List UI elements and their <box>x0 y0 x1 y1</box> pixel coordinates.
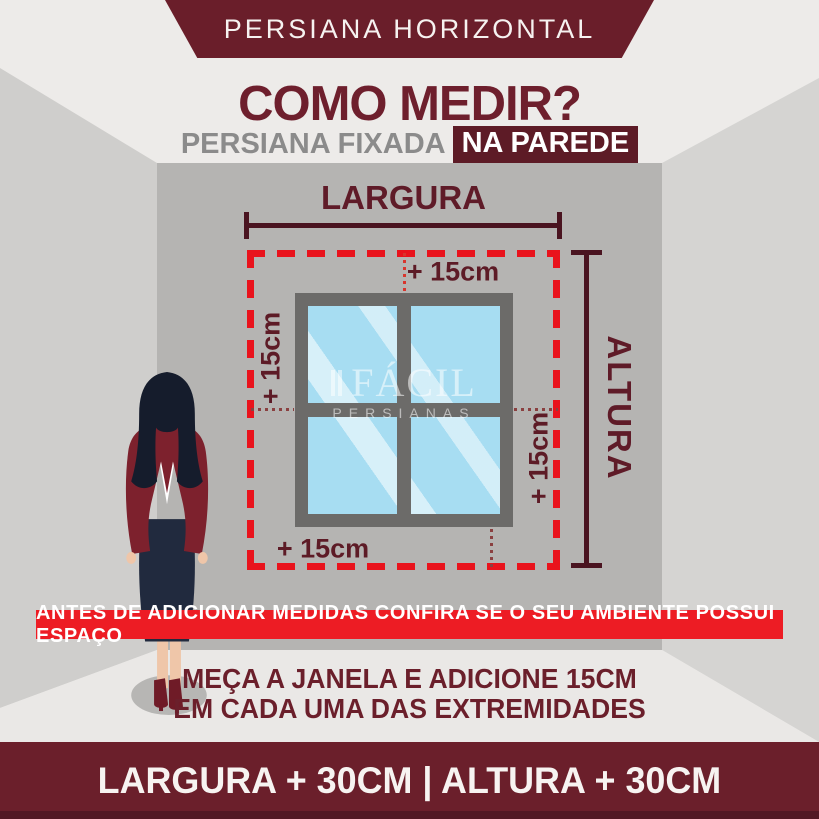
subtitle-prefix: PERSIANA FIXADA <box>181 128 446 161</box>
instruction-line-2: EM CADA UMA DAS EXTREMIDADES <box>20 693 798 725</box>
warning-banner: ANTES DE ADICIONAR MEDIDAS CONFIRA SE O … <box>36 610 783 639</box>
offset-bottom-label: + 15cm <box>277 534 369 565</box>
height-measure-cap-bottom <box>571 563 602 568</box>
warning-text: ANTES DE ADICIONAR MEDIDAS CONFIRA SE O … <box>36 602 783 648</box>
footer-edge <box>0 811 819 819</box>
leader-dotted-right <box>514 408 558 411</box>
width-measure-line <box>246 223 560 228</box>
height-measure-line <box>584 252 589 568</box>
leader-dotted-bottom <box>490 529 493 569</box>
window-mullion-horizontal <box>308 403 500 417</box>
height-label: ALTURA <box>600 335 638 480</box>
ribbon-label: PERSIANA HORIZONTAL <box>224 14 596 45</box>
leader-dotted-top <box>403 253 406 293</box>
page-title: COMO MEDIR? <box>0 76 819 132</box>
subtitle-highlight: NA PAREDE <box>453 126 639 163</box>
width-measure-cap-left <box>244 212 249 239</box>
infographic-canvas: PERSIANA HORIZONTAL COMO MEDIR? PERSIANA… <box>0 0 819 819</box>
offset-right-label: + 15cm <box>524 412 555 504</box>
width-label: LARGURA <box>247 179 560 217</box>
footer-banner: LARGURA + 30CM | ALTURA + 30CM <box>0 742 819 819</box>
instruction-line-1: MEÇA A JANELA E ADICIONE 15CM <box>20 663 798 695</box>
top-ribbon: PERSIANA HORIZONTAL <box>165 0 654 58</box>
footer-formula: LARGURA + 30CM | ALTURA + 30CM <box>98 760 722 802</box>
offset-top-label: + 15cm <box>407 257 499 288</box>
width-measure-cap-right <box>557 212 562 239</box>
offset-left-label: + 15cm <box>256 312 287 404</box>
leader-dotted-left <box>251 408 294 411</box>
page-subtitle: PERSIANA FIXADA NA PAREDE <box>0 126 819 163</box>
window-illustration <box>295 293 513 527</box>
height-measure-cap-top <box>571 250 602 255</box>
